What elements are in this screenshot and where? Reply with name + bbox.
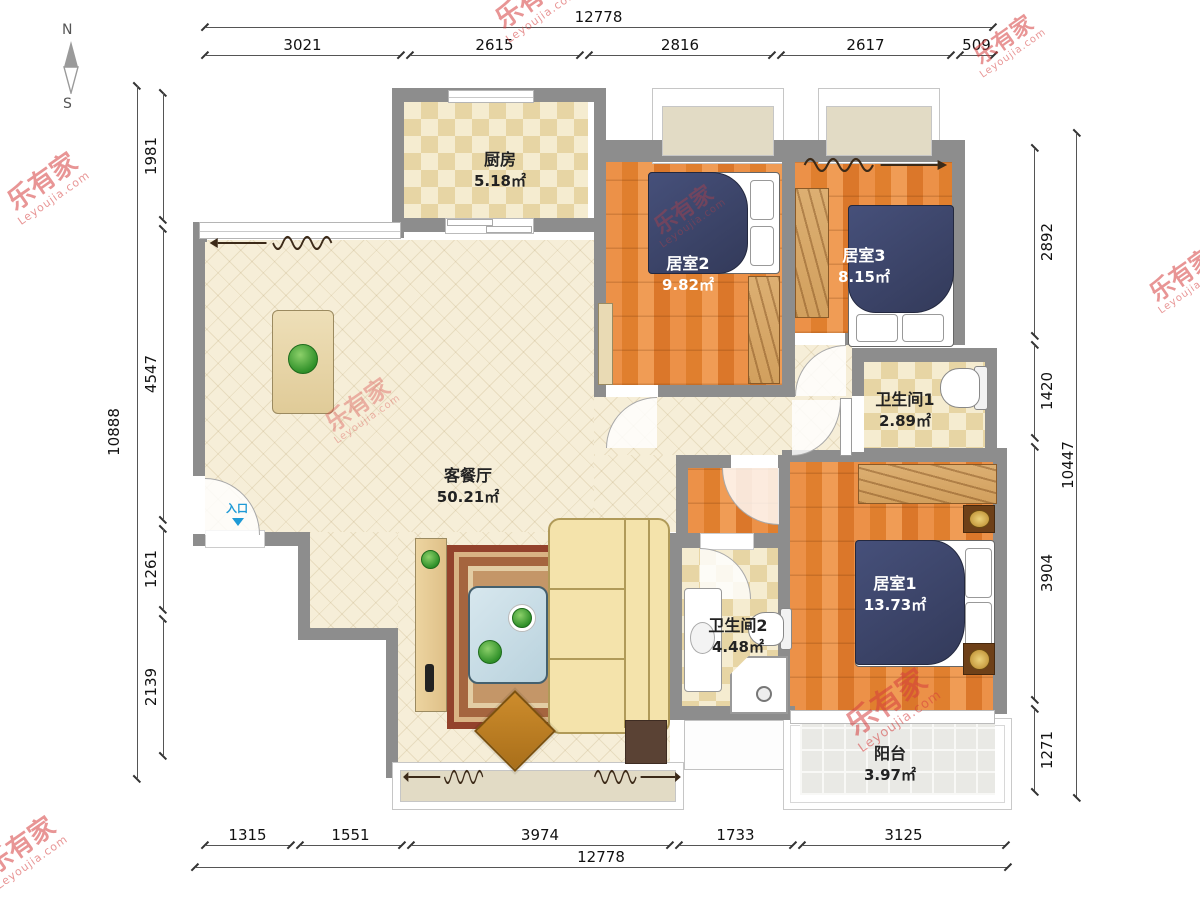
bedroom3-label: 居室3 8.15㎡	[814, 242, 914, 287]
bath2-label: 卫生间2 4.48㎡	[688, 612, 788, 657]
dim-label: 12778	[195, 848, 1007, 866]
sofa-side-table	[625, 720, 667, 764]
sofa-chaise-line	[648, 520, 650, 728]
coffee-table	[468, 586, 548, 684]
tv-remote	[425, 664, 434, 692]
dim-label: 2816	[589, 36, 771, 54]
room-area: 4.48㎡	[688, 636, 788, 657]
watermark-brand: 乐有家	[2, 148, 83, 217]
bedroom3-pillow	[902, 314, 944, 342]
room-area: 2.89㎡	[855, 410, 955, 431]
kitchen-sliding-door-leaf	[447, 219, 493, 226]
dim-label: 3974	[411, 826, 669, 844]
living-floor	[205, 240, 594, 532]
bath1-label: 卫生间1 2.89㎡	[855, 386, 955, 431]
dim-label: 1551	[300, 826, 401, 844]
wall	[676, 455, 688, 545]
watermark: 乐有家 Leyoujia.com	[0, 811, 70, 891]
bedroom1-wardrobe	[858, 464, 997, 504]
bedroom3-pillow	[856, 314, 898, 342]
dim-label: 2617	[781, 36, 950, 54]
bedroom1-label: 居室1 13.73㎡	[845, 570, 945, 615]
compass-south-label: S	[63, 96, 72, 112]
coffee-table-plant-icon	[478, 640, 502, 664]
dim-label: 2615	[410, 36, 579, 54]
room-name: 居室3	[814, 242, 914, 266]
bedroom1-nightstand	[963, 643, 995, 675]
room-area: 5.18㎡	[450, 170, 550, 191]
dim-bottom-total: 12778	[195, 852, 1007, 872]
tv-cabinet-plant-icon	[421, 550, 440, 569]
wall	[670, 533, 682, 718]
bedroom2-door-opening	[606, 385, 658, 397]
bath2-door-opening	[700, 533, 754, 550]
wall	[782, 150, 795, 397]
dim-top-total: 12778	[205, 12, 992, 32]
watermark-brand: 乐有家	[1144, 243, 1200, 307]
dim-label: 4547	[142, 355, 160, 393]
room-area: 3.97㎡	[840, 764, 940, 785]
sofa-cushion-line	[550, 658, 626, 660]
bedroom1-door-opening	[731, 455, 778, 468]
wall	[298, 628, 398, 640]
dim-right-segments: 2892 1420 3904 1271	[1034, 148, 1060, 791]
outdoor-platform	[684, 720, 786, 770]
bedroom2-wardrobe	[748, 276, 780, 384]
balcony-label: 阳台 3.97㎡	[840, 740, 940, 785]
room-name: 卫生间1	[855, 386, 955, 410]
dim-label: 2892	[1038, 222, 1056, 260]
watermark-domain: Leyoujia.com	[16, 170, 92, 228]
dim-label: 1733	[679, 826, 792, 844]
dim-label: 1261	[142, 550, 160, 588]
bedroom2-side-cabinet	[598, 303, 613, 385]
bedroom1-ornament	[963, 505, 995, 533]
dim-label: 10888	[105, 408, 123, 456]
dim-top-segments: 3021 2615 2816 2617 509	[205, 40, 993, 60]
room-area: 8.15㎡	[814, 266, 914, 287]
wall	[386, 628, 398, 778]
kitchen-window	[448, 90, 534, 103]
floorplan-canvas: N S 12778 3021 2615 2816 2617 509 1315 1…	[0, 0, 1200, 900]
dim-label: 509	[960, 36, 993, 54]
bedroom2-pillow	[750, 180, 774, 220]
dim-label: 1315	[205, 826, 290, 844]
bath2-shower-drain	[756, 686, 772, 702]
wall	[852, 448, 1007, 462]
wall	[852, 348, 997, 362]
bedroom2-label: 居室2 9.82㎡	[638, 250, 738, 295]
bedroom1-pillow	[965, 548, 992, 598]
dim-label: 1981	[142, 137, 160, 175]
dim-left-segments: 1981 4547 1261 2139	[138, 93, 164, 755]
sofa-cushion-line	[550, 588, 626, 590]
dim-right-total: 10447	[1076, 133, 1092, 797]
bedroom3-bay-sill	[826, 106, 932, 156]
window-squiggle-arrow-icon	[402, 768, 487, 784]
window-squiggle-arrow-icon	[208, 234, 338, 250]
wall	[298, 540, 310, 640]
room-area: 9.82㎡	[638, 274, 738, 295]
sofa	[548, 518, 670, 734]
bath1-door-leaf	[840, 398, 852, 456]
dim-label: 2139	[142, 668, 160, 706]
dim-label: 3904	[1038, 554, 1056, 592]
room-area: 50.21㎡	[418, 486, 518, 507]
bedroom2-pillow	[750, 226, 774, 266]
dim-label: 3125	[802, 826, 1005, 844]
dim-label: 3021	[205, 36, 400, 54]
kitchen-label: 厨房 5.18㎡	[450, 146, 550, 191]
room-name: 卫生间2	[688, 612, 788, 636]
compass-north-label: N	[62, 22, 72, 38]
dim-bottom-segments: 1315 1551 3974 1733 3125	[205, 830, 1005, 850]
dim-label: 1271	[1038, 731, 1056, 769]
window-squiggle-arrow-icon	[797, 156, 949, 172]
living-label: 客餐厅 50.21㎡	[418, 462, 518, 507]
dim-label: 10447	[1059, 441, 1077, 489]
room-name: 居室2	[638, 250, 738, 274]
kitchen-sliding-door-leaf	[486, 226, 532, 233]
wall	[392, 88, 404, 238]
watermark: 乐有家 Leyoujia.com	[1143, 243, 1200, 317]
room-name: 阳台	[840, 740, 940, 764]
coffee-table-plant-icon	[512, 608, 532, 628]
watermark-domain: Leyoujia.com	[0, 834, 70, 892]
entrance-opening	[193, 476, 205, 534]
watermark: 乐有家 Leyoujia.com	[1, 147, 93, 227]
room-name: 厨房	[450, 146, 550, 170]
window-squiggle-arrow-icon	[590, 768, 682, 784]
room-area: 13.73㎡	[845, 594, 945, 615]
dim-left-total: 10888	[122, 86, 138, 778]
bedroom2-bay-sill	[662, 106, 774, 156]
dining-plant-icon	[288, 344, 318, 374]
dim-label: 12778	[205, 8, 992, 26]
compass-icon	[58, 40, 84, 94]
room-name: 客餐厅	[418, 462, 518, 486]
room-name: 居室1	[845, 570, 945, 594]
dim-label: 1420	[1038, 372, 1056, 410]
watermark-domain: Leyoujia.com	[1157, 263, 1200, 316]
entrance-label: 入口	[226, 500, 248, 516]
sofa-chaise-divider	[624, 520, 626, 728]
bedroom1-balcony-window	[790, 710, 995, 724]
entrance-arrow-icon	[232, 518, 244, 526]
watermark-brand: 乐有家	[0, 812, 61, 881]
